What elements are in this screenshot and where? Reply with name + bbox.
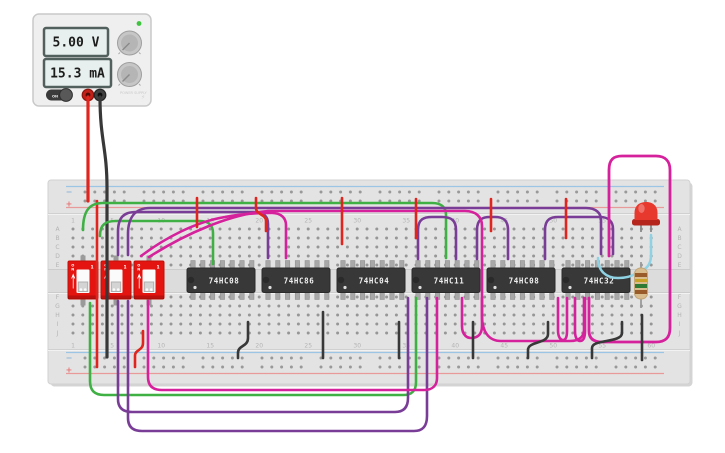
breadboard-hole bbox=[170, 332, 173, 335]
breadboard-hole bbox=[111, 246, 114, 249]
breadboard-hole bbox=[280, 357, 283, 360]
breadboard-hole bbox=[359, 191, 362, 194]
breadboard-hole bbox=[72, 246, 75, 249]
breadboard-hole bbox=[434, 246, 437, 249]
breadboard-hole bbox=[624, 366, 627, 369]
breadboard-hole bbox=[611, 323, 614, 326]
breadboard-hole bbox=[111, 237, 114, 240]
breadboard-hole bbox=[241, 357, 244, 360]
breadboard-hole bbox=[121, 237, 124, 240]
breadboard-hole bbox=[447, 191, 450, 194]
ic-pin bbox=[445, 261, 449, 269]
breadboard-hole bbox=[611, 264, 614, 267]
breadboard-hole bbox=[630, 305, 633, 308]
breadboard-hole bbox=[385, 255, 388, 258]
breadboard-hole bbox=[634, 357, 637, 360]
breadboard-hole bbox=[170, 323, 173, 326]
ic-pin bbox=[230, 261, 234, 269]
breadboard-hole bbox=[150, 323, 153, 326]
row-label: H bbox=[677, 312, 682, 319]
breadboard-hole bbox=[654, 200, 657, 203]
breadboard-hole bbox=[307, 332, 310, 335]
breadboard-hole bbox=[457, 366, 460, 369]
breadboard-hole bbox=[366, 264, 369, 267]
breadboard-hole bbox=[483, 255, 486, 258]
breadboard-hole bbox=[258, 323, 261, 326]
breadboard-hole bbox=[268, 323, 271, 326]
ic-pin bbox=[400, 261, 404, 269]
breadboard-hole bbox=[503, 246, 506, 249]
breadboard-hole bbox=[562, 246, 565, 249]
breadboard-hole bbox=[103, 366, 106, 369]
breadboard-hole bbox=[493, 332, 496, 335]
breadboard-hole bbox=[336, 296, 339, 299]
breadboard-hole bbox=[359, 366, 362, 369]
breadboard-hole bbox=[650, 314, 653, 317]
breadboard-hole bbox=[522, 332, 525, 335]
ic-pin bbox=[491, 261, 495, 269]
breadboard-hole bbox=[379, 357, 382, 360]
breadboard-hole bbox=[497, 366, 500, 369]
breadboard-hole bbox=[395, 228, 398, 231]
breadboard-hole bbox=[640, 255, 643, 258]
breadboard-hole bbox=[346, 305, 349, 308]
breadboard-hole bbox=[130, 228, 133, 231]
breadboard-hole bbox=[238, 305, 241, 308]
breadboard-hole bbox=[601, 296, 604, 299]
breadboard-hole bbox=[630, 246, 633, 249]
breadboard-hole bbox=[258, 296, 261, 299]
breadboard-hole bbox=[199, 305, 202, 308]
breadboard-hole bbox=[121, 305, 124, 308]
breadboard-hole bbox=[388, 191, 391, 194]
breadboard-hole bbox=[160, 323, 163, 326]
breadboard-hole bbox=[326, 305, 329, 308]
breadboard-hole bbox=[140, 246, 143, 249]
breadboard-hole bbox=[552, 255, 555, 258]
ic-pin bbox=[341, 261, 345, 269]
column-label: 1 bbox=[71, 343, 75, 350]
breadboard-hole bbox=[280, 191, 283, 194]
ic-pin bbox=[240, 261, 244, 269]
breadboard-hole bbox=[447, 357, 450, 360]
breadboard-hole bbox=[405, 246, 408, 249]
breadboard-hole bbox=[231, 191, 234, 194]
breadboard-hole bbox=[189, 323, 192, 326]
breadboard-hole bbox=[317, 305, 320, 308]
breadboard-hole bbox=[385, 237, 388, 240]
breadboard-hole bbox=[84, 191, 87, 194]
breadboard-hole bbox=[199, 255, 202, 258]
breadboard-hole bbox=[336, 305, 339, 308]
breadboard-hole bbox=[221, 191, 224, 194]
breadboard-hole bbox=[123, 357, 126, 360]
breadboard-hole bbox=[209, 237, 212, 240]
breadboard-hole bbox=[307, 305, 310, 308]
breadboard-hole bbox=[307, 246, 310, 249]
breadboard-hole bbox=[473, 314, 476, 317]
breadboard-hole bbox=[581, 228, 584, 231]
ic-pin bbox=[615, 261, 619, 269]
ic-pin1-dot bbox=[343, 286, 346, 289]
breadboard-hole bbox=[297, 314, 300, 317]
breadboard-hole bbox=[424, 237, 427, 240]
breadboard-hole bbox=[571, 246, 574, 249]
breadboard-hole bbox=[346, 323, 349, 326]
breadboard-hole bbox=[84, 357, 87, 360]
breadboard-hole bbox=[287, 255, 290, 258]
dip-switch-1[interactable]: ON1 bbox=[68, 256, 98, 306]
breadboard-hole bbox=[346, 237, 349, 240]
breadboard-hole bbox=[634, 366, 637, 369]
breadboard-hole bbox=[300, 191, 303, 194]
switch-position-label: 1 bbox=[157, 265, 160, 271]
breadboard-hole bbox=[290, 191, 293, 194]
breadboard-hole bbox=[585, 357, 588, 360]
breadboard-hole bbox=[170, 255, 173, 258]
breadboard-hole bbox=[565, 191, 568, 194]
breadboard-hole bbox=[317, 314, 320, 317]
circuit-canvas: 5.00 V 15.3 mA ON bbox=[0, 0, 725, 453]
breadboard-hole bbox=[591, 228, 594, 231]
breadboard-hole bbox=[231, 366, 234, 369]
breadboard-hole bbox=[532, 255, 535, 258]
breadboard-hole bbox=[601, 314, 604, 317]
column-label: 10 bbox=[157, 343, 165, 350]
breadboard-hole bbox=[630, 264, 633, 267]
voltage-knob[interactable] bbox=[118, 31, 142, 55]
breadboard-hole bbox=[375, 296, 378, 299]
breadboard-hole bbox=[172, 357, 175, 360]
breadboard-hole bbox=[503, 332, 506, 335]
breadboard-hole bbox=[277, 332, 280, 335]
breadboard-hole bbox=[238, 323, 241, 326]
breadboard-hole bbox=[336, 237, 339, 240]
breadboard-hole bbox=[385, 305, 388, 308]
breadboard-hole bbox=[123, 191, 126, 194]
breadboard-hole bbox=[238, 237, 241, 240]
breadboard-hole bbox=[385, 264, 388, 267]
breadboard-hole bbox=[152, 357, 155, 360]
breadboard-hole bbox=[336, 314, 339, 317]
switch-shade bbox=[134, 296, 164, 300]
breadboard-hole bbox=[493, 255, 496, 258]
breadboard-hole bbox=[644, 366, 647, 369]
breadboard-hole bbox=[179, 264, 182, 267]
breadboard-hole bbox=[121, 255, 124, 258]
breadboard-hole bbox=[339, 366, 342, 369]
breadboard-hole bbox=[130, 305, 133, 308]
breadboard-hole bbox=[506, 366, 509, 369]
breadboard-hole bbox=[644, 191, 647, 194]
breadboard-hole bbox=[552, 237, 555, 240]
breadboard-hole bbox=[644, 357, 647, 360]
ic-pin bbox=[510, 261, 514, 269]
breadboard-hole bbox=[424, 246, 427, 249]
breadboard-hole bbox=[434, 228, 437, 231]
breadboard-hole bbox=[375, 228, 378, 231]
ic-pin1-dot bbox=[568, 286, 571, 289]
breadboard-hole bbox=[630, 228, 633, 231]
breadboard-hole bbox=[464, 314, 467, 317]
breadboard-hole bbox=[336, 323, 339, 326]
breadboard-hole bbox=[591, 264, 594, 267]
breadboard-hole bbox=[493, 228, 496, 231]
ic-pin bbox=[360, 261, 364, 269]
breadboard-hole bbox=[219, 237, 222, 240]
breadboard-hole bbox=[346, 255, 349, 258]
breadboard-hole bbox=[349, 366, 352, 369]
breadboard-hole bbox=[595, 357, 598, 360]
breadboard-hole bbox=[591, 237, 594, 240]
breadboard-hole bbox=[497, 191, 500, 194]
breadboard-hole bbox=[503, 323, 506, 326]
breadboard-hole bbox=[513, 305, 516, 308]
ic-pin bbox=[550, 261, 554, 269]
breadboard-hole bbox=[395, 264, 398, 267]
row-label: J bbox=[678, 330, 681, 337]
breadboard-hole bbox=[516, 200, 519, 203]
ic-notch bbox=[263, 277, 269, 283]
breadboard-hole bbox=[356, 246, 359, 249]
breadboard-hole bbox=[336, 332, 339, 335]
breadboard-hole bbox=[81, 246, 84, 249]
breadboard-hole bbox=[591, 314, 594, 317]
breadboard-hole bbox=[493, 314, 496, 317]
breadboard-hole bbox=[552, 305, 555, 308]
breadboard-hole bbox=[189, 305, 192, 308]
breadboard-hole bbox=[162, 357, 165, 360]
breadboard-hole bbox=[522, 323, 525, 326]
ic-pin1-dot bbox=[268, 286, 271, 289]
breadboard-hole bbox=[238, 314, 241, 317]
breadboard-hole bbox=[366, 305, 369, 308]
breadboard-hole bbox=[258, 305, 261, 308]
bolt-icon: ⚡ bbox=[141, 94, 145, 101]
breadboard-hole bbox=[91, 323, 94, 326]
breadboard-hole bbox=[650, 305, 653, 308]
breadboard-hole bbox=[552, 228, 555, 231]
breadboard-hole bbox=[241, 191, 244, 194]
dip-switch-3[interactable]: ON1 bbox=[134, 256, 164, 306]
breadboard-hole bbox=[424, 255, 427, 258]
breadboard-hole bbox=[630, 296, 633, 299]
breadboard-hole bbox=[556, 357, 559, 360]
breadboard-hole bbox=[182, 366, 185, 369]
ic-pin bbox=[325, 261, 329, 269]
breadboard-hole bbox=[170, 228, 173, 231]
column-label: 5 bbox=[110, 343, 114, 350]
breadboard-hole bbox=[287, 246, 290, 249]
breadboard-hole bbox=[375, 314, 378, 317]
breadboard-hole bbox=[513, 228, 516, 231]
ic-pin bbox=[576, 261, 580, 269]
ic-notch bbox=[188, 277, 194, 283]
breadboard-hole bbox=[418, 191, 421, 194]
breadboard-hole bbox=[375, 264, 378, 267]
breadboard-hole bbox=[356, 228, 359, 231]
breadboard-hole bbox=[91, 246, 94, 249]
breadboard-hole bbox=[160, 237, 163, 240]
breadboard-hole bbox=[150, 314, 153, 317]
breadboard-hole bbox=[650, 296, 653, 299]
breadboard-hole bbox=[630, 255, 633, 258]
breadboard-hole bbox=[326, 237, 329, 240]
breadboard-hole bbox=[654, 357, 657, 360]
breadboard-hole bbox=[81, 314, 84, 317]
breadboard-hole bbox=[277, 237, 280, 240]
breadboard-hole bbox=[238, 246, 241, 249]
breadboard-hole bbox=[297, 228, 300, 231]
breadboard-hole bbox=[221, 357, 224, 360]
breadboard-hole bbox=[111, 314, 114, 317]
breadboard-hole bbox=[532, 314, 535, 317]
breadboard-hole bbox=[447, 200, 450, 203]
row-label: D bbox=[55, 253, 60, 260]
breadboard-hole bbox=[277, 314, 280, 317]
breadboard-hole bbox=[385, 246, 388, 249]
breadboard-hole bbox=[591, 305, 594, 308]
voltage-value: 5.00 V bbox=[53, 36, 100, 51]
breadboard-hole bbox=[503, 255, 506, 258]
breadboard-hole bbox=[72, 255, 75, 258]
breadboard-hole bbox=[526, 200, 529, 203]
breadboard-hole bbox=[143, 366, 146, 369]
breadboard-hole bbox=[585, 366, 588, 369]
breadboard-hole bbox=[575, 366, 578, 369]
breadboard-hole bbox=[405, 255, 408, 258]
breadboard-hole bbox=[121, 228, 124, 231]
breadboard-hole bbox=[277, 323, 280, 326]
breadboard-hole bbox=[620, 305, 623, 308]
breadboard-hole bbox=[346, 264, 349, 267]
breadboard-hole bbox=[199, 314, 202, 317]
breadboard-hole bbox=[91, 332, 94, 335]
breadboard-hole bbox=[209, 246, 212, 249]
breadboard-hole bbox=[395, 296, 398, 299]
breadboard-hole bbox=[532, 305, 535, 308]
ic-pin bbox=[201, 261, 205, 269]
breadboard-hole bbox=[326, 332, 329, 335]
breadboard-hole bbox=[438, 191, 441, 194]
ic-pin1-dot bbox=[493, 286, 496, 289]
breadboard-hole bbox=[434, 255, 437, 258]
breadboard-hole bbox=[385, 332, 388, 335]
breadboard-hole bbox=[473, 305, 476, 308]
breadboard-hole bbox=[562, 314, 565, 317]
breadboard-hole bbox=[542, 314, 545, 317]
breadboard-hole bbox=[467, 366, 470, 369]
breadboard-hole bbox=[654, 191, 657, 194]
ic-label: 74HC08 bbox=[509, 277, 540, 286]
breadboard-hole bbox=[522, 228, 525, 231]
resistor-band-3 bbox=[635, 284, 647, 288]
ic-pin bbox=[305, 261, 309, 269]
breadboard-hole bbox=[571, 228, 574, 231]
breadboard-hole bbox=[375, 305, 378, 308]
breadboard-hole bbox=[349, 191, 352, 194]
breadboard-hole bbox=[179, 255, 182, 258]
breadboard-hole bbox=[532, 237, 535, 240]
breadboard-hole bbox=[140, 314, 143, 317]
breadboard-hole bbox=[356, 305, 359, 308]
breadboard-hole bbox=[189, 237, 192, 240]
breadboard-hole bbox=[317, 237, 320, 240]
breadboard-hole bbox=[346, 228, 349, 231]
breadboard-hole bbox=[556, 200, 559, 203]
breadboard-hole bbox=[202, 357, 205, 360]
breadboard-hole bbox=[562, 264, 565, 267]
breadboard-hole bbox=[277, 305, 280, 308]
switch-position-label: 1 bbox=[124, 265, 127, 271]
breadboard-hole bbox=[221, 366, 224, 369]
breadboard-hole bbox=[258, 314, 261, 317]
breadboard-hole bbox=[248, 255, 251, 258]
breadboard-hole bbox=[113, 366, 116, 369]
ic-pin bbox=[315, 261, 319, 269]
breadboard-hole bbox=[522, 246, 525, 249]
breadboard-hole bbox=[101, 332, 104, 335]
breadboard-hole bbox=[179, 305, 182, 308]
breadboard-hole bbox=[359, 357, 362, 360]
breadboard-hole bbox=[611, 305, 614, 308]
breadboard-hole bbox=[189, 332, 192, 335]
breadboard-hole bbox=[172, 191, 175, 194]
breadboard-hole bbox=[258, 246, 261, 249]
breadboard-hole bbox=[268, 305, 271, 308]
breadboard-hole bbox=[379, 191, 382, 194]
column-label: 20 bbox=[255, 343, 263, 350]
ic-pin bbox=[435, 261, 439, 269]
breadboard-hole bbox=[536, 366, 539, 369]
power-toggle[interactable]: ON bbox=[46, 89, 72, 102]
ic-pin bbox=[625, 261, 629, 269]
breadboard-hole bbox=[454, 305, 457, 308]
breadboard-hole bbox=[130, 246, 133, 249]
breadboard-hole bbox=[624, 357, 627, 360]
breadboard-hole bbox=[199, 246, 202, 249]
breadboard-hole bbox=[650, 323, 653, 326]
breadboard-hole bbox=[542, 305, 545, 308]
row-label: C bbox=[55, 244, 59, 251]
resistor-band-4 bbox=[635, 290, 647, 294]
breadboard-hole bbox=[493, 237, 496, 240]
breadboard-hole bbox=[591, 332, 594, 335]
ic-pin bbox=[380, 261, 384, 269]
breadboard-hole bbox=[261, 357, 264, 360]
breadboard-hole bbox=[72, 305, 75, 308]
breadboard-hole bbox=[562, 323, 565, 326]
row-label: B bbox=[677, 235, 681, 242]
breadboard-hole bbox=[81, 332, 84, 335]
current-knob[interactable] bbox=[118, 63, 142, 87]
breadboard-hole bbox=[542, 332, 545, 335]
breadboard-hole bbox=[595, 366, 598, 369]
row-label: F bbox=[56, 294, 60, 301]
toggle-on-label: ON bbox=[52, 95, 58, 99]
breadboard-hole bbox=[219, 305, 222, 308]
breadboard-hole bbox=[248, 228, 251, 231]
breadboard-hole bbox=[513, 314, 516, 317]
breadboard-hole bbox=[290, 357, 293, 360]
breadboard-hole bbox=[317, 246, 320, 249]
breadboard-hole bbox=[248, 305, 251, 308]
breadboard-hole bbox=[277, 255, 280, 258]
power-supply[interactable]: 5.00 V 15.3 mA ON bbox=[33, 14, 151, 106]
switch-knob-notch bbox=[146, 288, 149, 291]
breadboard-hole bbox=[130, 314, 133, 317]
breadboard-hole bbox=[326, 255, 329, 258]
